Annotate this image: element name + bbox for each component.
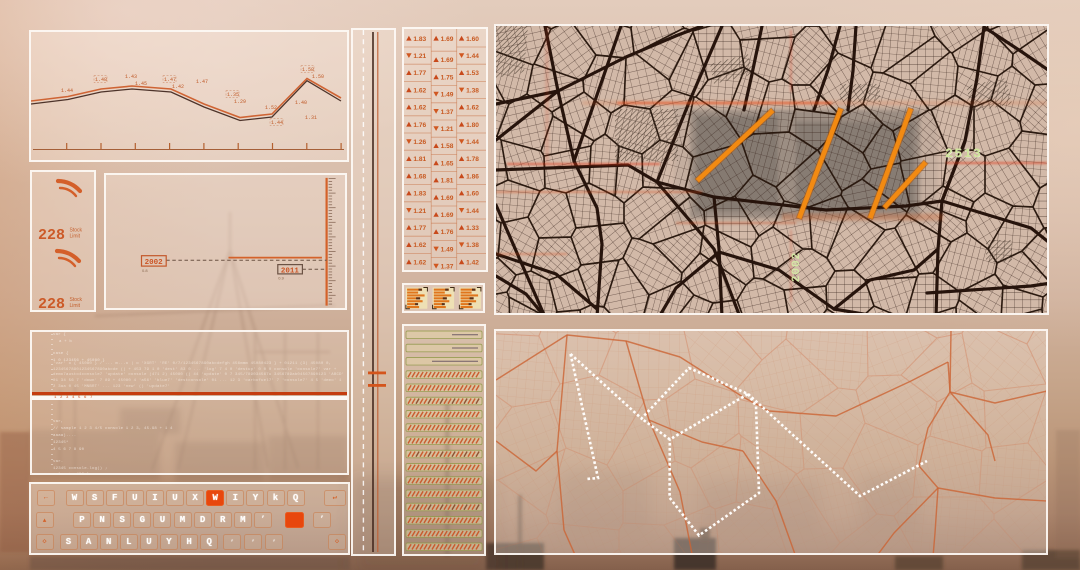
svg-text:1.58: 1.58 xyxy=(302,67,314,73)
svg-text:2002: 2002 xyxy=(791,252,803,282)
svg-text:2513: 2513 xyxy=(945,146,982,161)
svg-text:228: 228 xyxy=(38,296,65,310)
svg-text:1.47: 1.47 xyxy=(164,77,176,83)
svg-text:1.77: 1.77 xyxy=(413,225,426,232)
svg-text:1.33: 1.33 xyxy=(466,225,479,232)
svg-text:0.8: 0.8 xyxy=(142,268,148,273)
svg-text:1.81: 1.81 xyxy=(413,156,426,163)
svg-text:1.83: 1.83 xyxy=(413,191,426,198)
svg-text:1.49: 1.49 xyxy=(441,92,454,99)
svg-text:1.44: 1.44 xyxy=(271,120,283,126)
svg-text:1.37: 1.37 xyxy=(441,264,454,270)
svg-text:1.60: 1.60 xyxy=(466,36,479,43)
svg-text:1.83: 1.83 xyxy=(413,36,426,43)
svg-text:1.42: 1.42 xyxy=(172,84,184,90)
svg-text:1.47: 1.47 xyxy=(196,79,208,85)
svg-text:1.44: 1.44 xyxy=(466,139,479,146)
svg-text:1.21: 1.21 xyxy=(441,126,454,133)
svg-text:1.69: 1.69 xyxy=(441,36,454,43)
svg-text:1.62: 1.62 xyxy=(413,259,426,266)
svg-text:1.40: 1.40 xyxy=(295,100,307,106)
svg-text:1.75: 1.75 xyxy=(441,74,454,81)
svg-text:1.77: 1.77 xyxy=(413,70,426,77)
svg-text:1.44: 1.44 xyxy=(466,208,479,215)
svg-text:1.35: 1.35 xyxy=(227,92,239,98)
svg-text:1.80: 1.80 xyxy=(466,122,479,129)
svg-text:1.48: 1.48 xyxy=(95,77,107,83)
svg-text:1.62: 1.62 xyxy=(413,242,426,249)
svg-text:1.76: 1.76 xyxy=(413,122,426,129)
svg-text:1.60: 1.60 xyxy=(466,191,479,198)
svg-text:1.49: 1.49 xyxy=(441,246,454,253)
svg-text:Limit: Limit xyxy=(70,234,81,240)
svg-text:1.76: 1.76 xyxy=(441,229,454,236)
svg-text:1.26: 1.26 xyxy=(413,139,426,146)
svg-text:1.44: 1.44 xyxy=(61,88,73,94)
svg-text:1.31: 1.31 xyxy=(305,115,317,121)
svg-text:1.50: 1.50 xyxy=(312,74,324,80)
svg-text:1.21: 1.21 xyxy=(413,208,426,215)
svg-text:1.62: 1.62 xyxy=(413,87,426,94)
svg-text:1.68: 1.68 xyxy=(413,173,426,180)
svg-text:1.65: 1.65 xyxy=(441,160,454,167)
svg-text:2011: 2011 xyxy=(281,267,300,275)
svg-text:1.78: 1.78 xyxy=(466,156,479,163)
svg-text:0.9: 0.9 xyxy=(278,276,284,281)
svg-text:1.81: 1.81 xyxy=(441,178,454,185)
svg-text:1.62: 1.62 xyxy=(466,105,479,112)
svg-text:1.69: 1.69 xyxy=(441,57,454,64)
svg-text:1.37: 1.37 xyxy=(441,109,454,116)
svg-text:1.58: 1.58 xyxy=(441,143,454,150)
svg-text:1.62: 1.62 xyxy=(413,105,426,112)
svg-text:1.43: 1.43 xyxy=(125,74,137,80)
svg-text:Limit: Limit xyxy=(70,303,81,309)
svg-text:1.29: 1.29 xyxy=(234,99,246,105)
svg-text:1.38: 1.38 xyxy=(466,242,479,249)
svg-text:1.38: 1.38 xyxy=(466,87,479,94)
svg-text:1.69: 1.69 xyxy=(441,212,454,219)
svg-text:1.45: 1.45 xyxy=(135,81,147,87)
svg-text:2002: 2002 xyxy=(145,259,164,267)
svg-text:1.52: 1.52 xyxy=(265,105,277,111)
svg-text:1.53: 1.53 xyxy=(466,70,479,77)
svg-text:1.42: 1.42 xyxy=(466,259,479,266)
svg-text:228: 228 xyxy=(38,227,65,244)
svg-text:1.69: 1.69 xyxy=(441,195,454,202)
svg-text:1.21: 1.21 xyxy=(413,53,426,60)
svg-text:1.44: 1.44 xyxy=(466,53,479,60)
svg-text:1.86: 1.86 xyxy=(466,173,479,180)
